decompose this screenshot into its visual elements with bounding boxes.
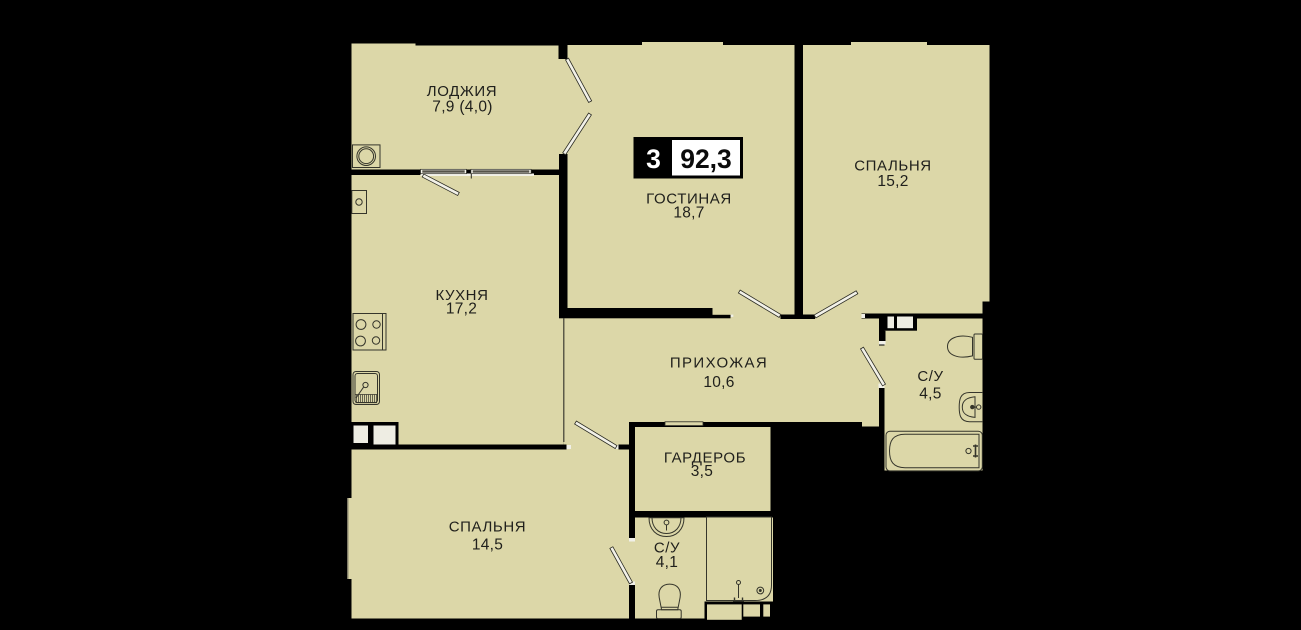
svg-text:10,6: 10,6 — [703, 374, 734, 391]
svg-text:С/У: С/У — [917, 368, 943, 385]
svg-text:15,2: 15,2 — [877, 173, 908, 190]
svg-text:ПРИХОЖАЯ: ПРИХОЖАЯ — [670, 355, 768, 372]
svg-text:18,7: 18,7 — [673, 205, 704, 222]
svg-text:4,1: 4,1 — [656, 554, 678, 571]
svg-text:3,5: 3,5 — [691, 463, 713, 480]
svg-text:3: 3 — [646, 144, 661, 174]
svg-text:4,5: 4,5 — [919, 386, 941, 403]
svg-text:СПАЛЬНЯ: СПАЛЬНЯ — [854, 158, 932, 175]
svg-text:14,5: 14,5 — [472, 536, 503, 553]
svg-text:17,2: 17,2 — [446, 301, 477, 318]
svg-text:ЛОДЖИЯ: ЛОДЖИЯ — [427, 83, 497, 100]
svg-text:СПАЛЬНЯ: СПАЛЬНЯ — [449, 518, 527, 535]
svg-text:7,9 (4,0): 7,9 (4,0) — [432, 99, 492, 116]
svg-text:92,3: 92,3 — [680, 144, 732, 174]
